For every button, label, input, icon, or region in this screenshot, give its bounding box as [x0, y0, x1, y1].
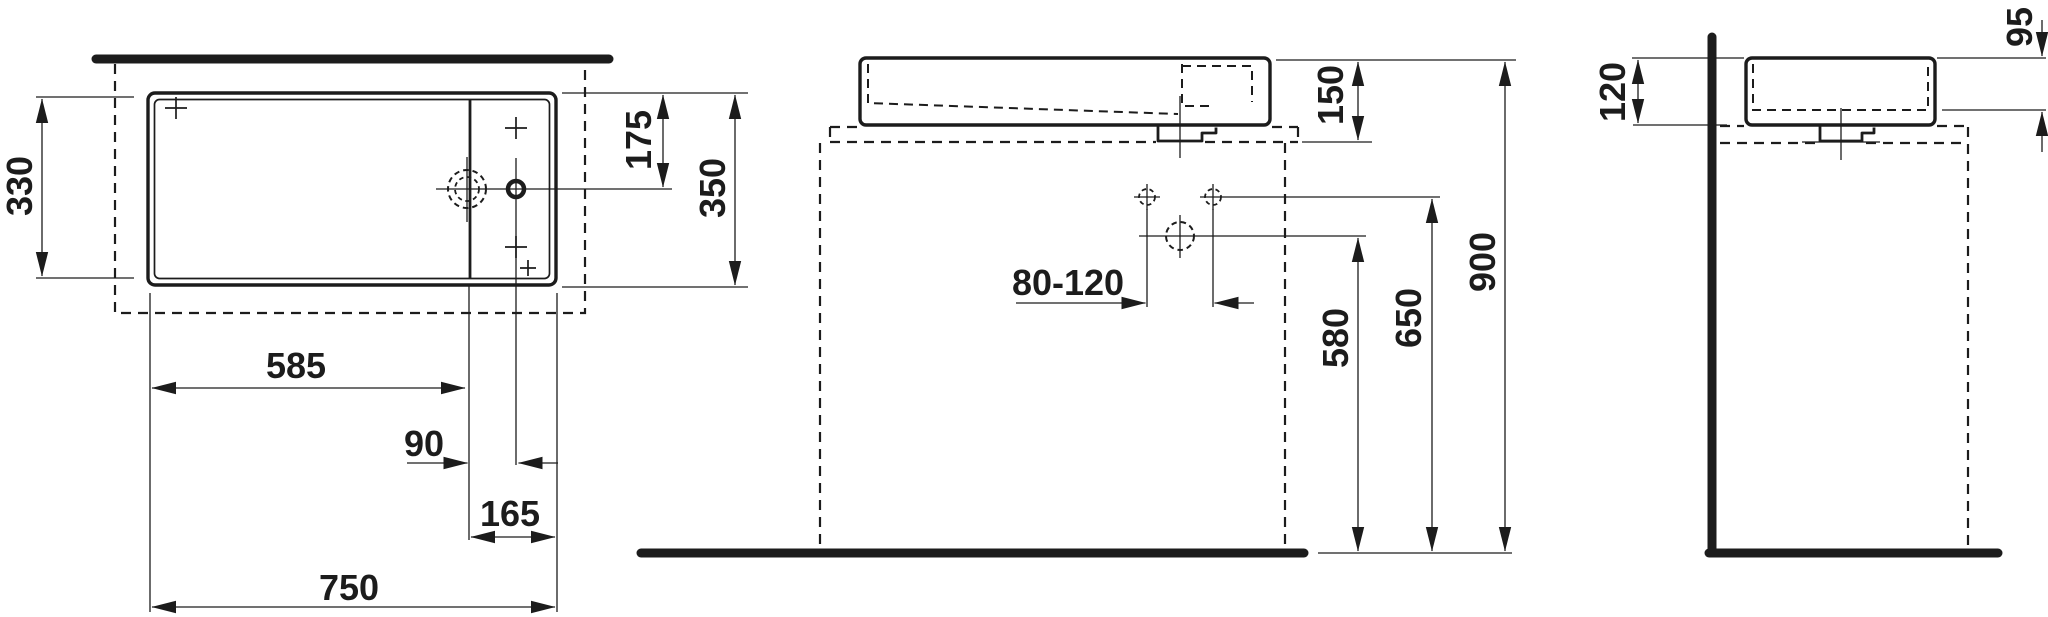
dim-tap-spacing: 80-120 [1012, 209, 1254, 307]
dim-580-label: 580 [1315, 308, 1356, 368]
dim-95-label: 95 [1999, 7, 2040, 47]
dim-350-label: 350 [692, 158, 733, 218]
side-view: 120 95 [1592, 7, 2046, 553]
dim-120-label: 120 [1592, 62, 1633, 122]
fixing-point-crosses [165, 97, 536, 276]
dim-body-height: 120 [1592, 58, 1744, 125]
top-view: 330 175 350 585 90 165 750 [0, 59, 748, 612]
dim-330-label: 330 [0, 156, 40, 216]
dim-80-120-label: 80-120 [1012, 262, 1124, 303]
dim-90-label: 90 [404, 423, 444, 464]
countertop-dashed-band-side [1720, 126, 1968, 551]
supply-connection-symbols [1134, 184, 1440, 258]
dim-tap-offset-and-depth: 175 350 [562, 93, 748, 287]
front-view: 80-120 150 580 650 900 [641, 58, 1516, 553]
tap-deck-hidden-edge-2 [1182, 66, 1252, 102]
dim-bowl-depth: 95 [1937, 7, 2046, 152]
basin-front-outline [860, 58, 1270, 125]
washbasin-dimension-drawing: 330 175 350 585 90 165 750 [0, 0, 2048, 617]
dim-150-label: 150 [1310, 65, 1351, 125]
dim-heights: 150 580 650 900 [1276, 60, 1516, 553]
dim-165-label: 165 [480, 493, 540, 534]
dim-bottom-chain: 585 90 165 750 [150, 285, 558, 612]
bowl-interior-dashed-side [1753, 64, 1928, 110]
dim-585-label: 585 [266, 345, 326, 386]
countertop-dashed-band [830, 127, 1298, 142]
drain-trap-front [1158, 127, 1216, 142]
dim-175-label: 175 [618, 110, 659, 170]
dim-650-label: 650 [1388, 288, 1429, 348]
tap-deck-hidden-edge [1182, 64, 1212, 106]
technical-drawing-canvas: 330 175 350 585 90 165 750 [0, 0, 2048, 617]
bowl-interior-dashed [868, 64, 1178, 114]
drain-trap-side [1820, 127, 1874, 142]
dim-750-label: 750 [319, 567, 379, 608]
dim-900-label: 900 [1462, 232, 1503, 292]
